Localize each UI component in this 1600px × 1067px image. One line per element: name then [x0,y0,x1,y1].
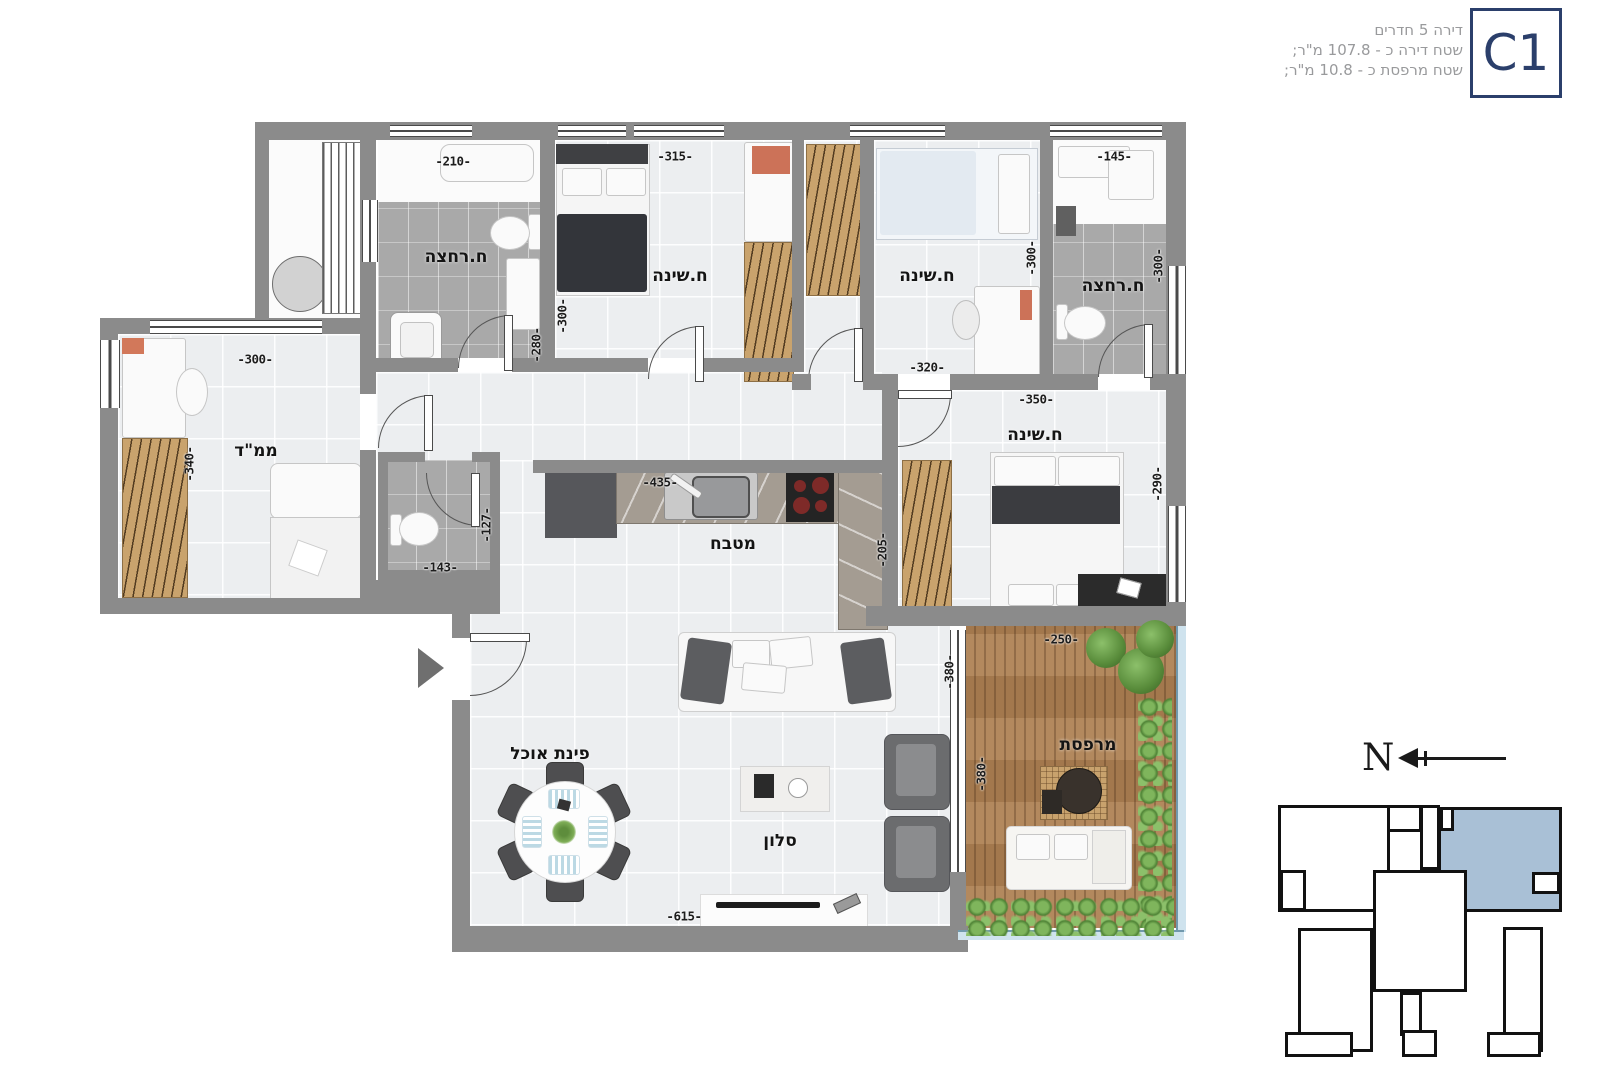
window-bath2-right [1168,266,1186,374]
wall-bath1-bed1 [540,122,555,360]
north-label: N [1362,736,1394,779]
master-pillow-a [994,456,1056,486]
master-pillow-b [1058,456,1120,486]
unit-badge-label: C1 [1483,24,1550,82]
keyplan-room-a-notch [1280,870,1306,911]
master-blanket [992,486,1120,524]
wc-toilet-bowl-icon [399,512,439,546]
dim-saferoom-depth: -340- [182,446,197,481]
label-bathroom2: ח.רחצה [1082,276,1145,296]
wall-kitchen-back [533,460,882,473]
wall-living-left-a [452,610,470,638]
entry-arrow-icon [418,648,444,688]
dim-bath1-depth: -280- [529,327,544,362]
dim-balcony-width: -250- [1043,632,1078,647]
key-plan [1255,785,1567,1067]
dim-balcony-depth: -380- [974,756,989,791]
window-bath2 [1050,125,1162,137]
unit-badge: C1 [1470,8,1562,98]
bath2-door-leaf [1144,324,1153,378]
armchair-2-cushion [896,826,936,878]
dim-wc-width: -143- [422,560,457,575]
coffee-table-bowl-icon [788,778,808,798]
dim-bath2-depth: -300- [1151,248,1166,283]
wall-slider-post [950,870,966,928]
coffee-table-tray [754,774,774,798]
label-balcony: מרפסת [1060,735,1117,755]
title-line-2: שטח דירה כ - 107.8 מ"ר; [1284,40,1463,60]
entry-door-leaf [470,633,530,642]
placemat-bottom [548,855,580,875]
dim-living-depth: -380- [942,654,957,689]
label-dining: פינת אוכל [510,744,590,764]
fridge [545,468,617,538]
wall-bed2-bath2 [1040,122,1053,374]
keyplan-unit-notch [1440,807,1454,831]
keyplan-core [1420,805,1440,870]
wall-corridor-a1 [376,358,458,372]
master-wardrobe [902,460,952,612]
saferoom-vanity-accent [122,338,144,354]
dim-saferoom-width: -300- [237,352,272,367]
balcony-side-table [1042,790,1062,814]
keyplan-connector-stub [1402,1030,1437,1057]
bed2-door-leaf [854,328,863,382]
burner-3 [793,497,810,514]
placemat-right [588,816,608,848]
label-living: סלון [763,831,797,851]
bed2-pillow [998,154,1030,234]
north-arrow-head-icon [1398,748,1418,768]
wall-master-left [882,390,898,608]
dim-living-width: -615- [666,909,701,924]
bed1-blanket [557,214,647,292]
dim-wc-depth: -127- [479,507,494,542]
bed1-pillow-a [562,168,602,196]
dim-bath1-width: -210- [435,154,470,169]
wall-living-left-b [452,700,470,950]
north-arrow-tick-h [1418,757,1433,760]
outdoor-chaise [1092,830,1126,884]
boiler-icon [272,256,328,312]
wall-living-bottom [452,926,968,952]
burner-2 [812,477,829,494]
bath2-cabinet [1056,206,1076,236]
sofa-cushion-right [840,637,892,705]
label-bathroom1: ח.רחצה [425,247,488,267]
window-bed2 [850,125,945,137]
dim-bed2-width: -320- [909,360,944,375]
balcony-hedge-right [1138,696,1172,928]
bed1-shelf-accent [752,146,790,174]
dim-bed2-depth: -300- [1024,240,1039,275]
sofa-cushion-left [680,637,732,705]
floor-plan-page: דירה 5 חדרים שטח דירה כ - 107.8 מ"ר; שטח… [0,0,1600,1067]
tv-icon [716,902,820,908]
label-master-bedroom: ח.שינה [1007,425,1062,445]
wall-corridor-a3 [700,358,792,372]
sofa-pillow-c [741,662,787,694]
sink-basin-icon [692,476,750,518]
window-bed1-b [634,125,724,137]
keyplan-unit-middle [1373,870,1467,992]
window-bath1 [390,125,472,137]
dim-master-depth: -290- [1150,466,1165,501]
bath1-door-leaf [504,315,513,371]
bed1-canopy [556,144,648,164]
balcony-plant-3 [1136,620,1174,658]
dim-bath2-width: -145- [1096,149,1131,164]
window-master-right [1168,506,1186,602]
wall-wc-left [378,452,388,580]
keyplan-tab-bottomright [1487,1032,1541,1057]
placemat-left [522,816,542,848]
dim-bed1-depth: -300- [555,298,570,333]
label-bedroom2: ח.שינה [899,266,954,286]
wall-corridor-b2 [863,374,898,390]
armchair-1-cushion [896,744,936,796]
bed2-chair [952,300,980,340]
table-plant-icon [552,820,576,844]
label-bedroom1: ח.שינה [652,266,707,286]
keyplan-unit-subroom [1532,872,1560,894]
bed1-door-leaf [695,326,704,382]
keyplan-tab-bottomleft [1285,1032,1353,1057]
saferoom-sink-icon [176,368,208,416]
rattan-table-top-icon [1056,768,1102,814]
saferoom-door-leaf [424,395,433,451]
burner-4 [815,500,827,512]
outdoor-cushion-a [1016,834,1050,860]
dim-kitchen-depth: -205- [875,532,890,567]
wall-tech-left [255,122,269,320]
title-block: דירה 5 חדרים שטח דירה כ - 107.8 מ"ר; שטח… [1284,20,1463,80]
shower-drain [400,322,434,358]
window-bed1-a [558,125,626,137]
window-tech-right [362,200,378,262]
window-saferoom-top [150,320,322,334]
dim-master-width: -350- [1018,392,1053,407]
wall-bed1-nook [792,122,804,372]
burner-1 [794,480,806,492]
wall-corridor-b3 [950,374,1098,390]
bed2-blanket [880,151,976,235]
keyplan-tab-top [1387,805,1422,832]
dim-kitchen-width: -435- [642,475,677,490]
toilet1-bowl-icon [490,216,530,250]
label-kitchen: מטבח [710,534,756,554]
title-line-1: דירה 5 חדרים [1284,20,1463,40]
toilet2-bowl-icon [1064,306,1106,340]
outdoor-cushion-b [1054,834,1088,860]
label-safe-room: ממ"ד [234,441,277,461]
title-line-3: שטח מרפסת כ - 10.8 מ"ר; [1284,60,1463,80]
nook-wardrobe [806,144,862,296]
master-door-leaf [898,390,952,399]
balcony-hedge-bottom [966,896,1174,936]
window-saferoom-left [100,340,120,408]
bed2-desk-accent [1020,290,1032,320]
louver-grille-icon [322,142,362,314]
balcony-railing-right [1176,626,1186,932]
saferoom-bed-pillows [270,463,362,519]
wall-master-bottom [866,606,1186,626]
dim-bed1-width: -315- [657,149,692,164]
wall-corridor-b1 [792,374,811,390]
bed1-pillow-b [606,168,646,196]
saferoom-wardrobe [122,438,188,598]
master-foot-pillow-a [1008,584,1054,606]
wall-entry-block [373,580,500,614]
wall-saferoom-bottom [100,598,362,614]
